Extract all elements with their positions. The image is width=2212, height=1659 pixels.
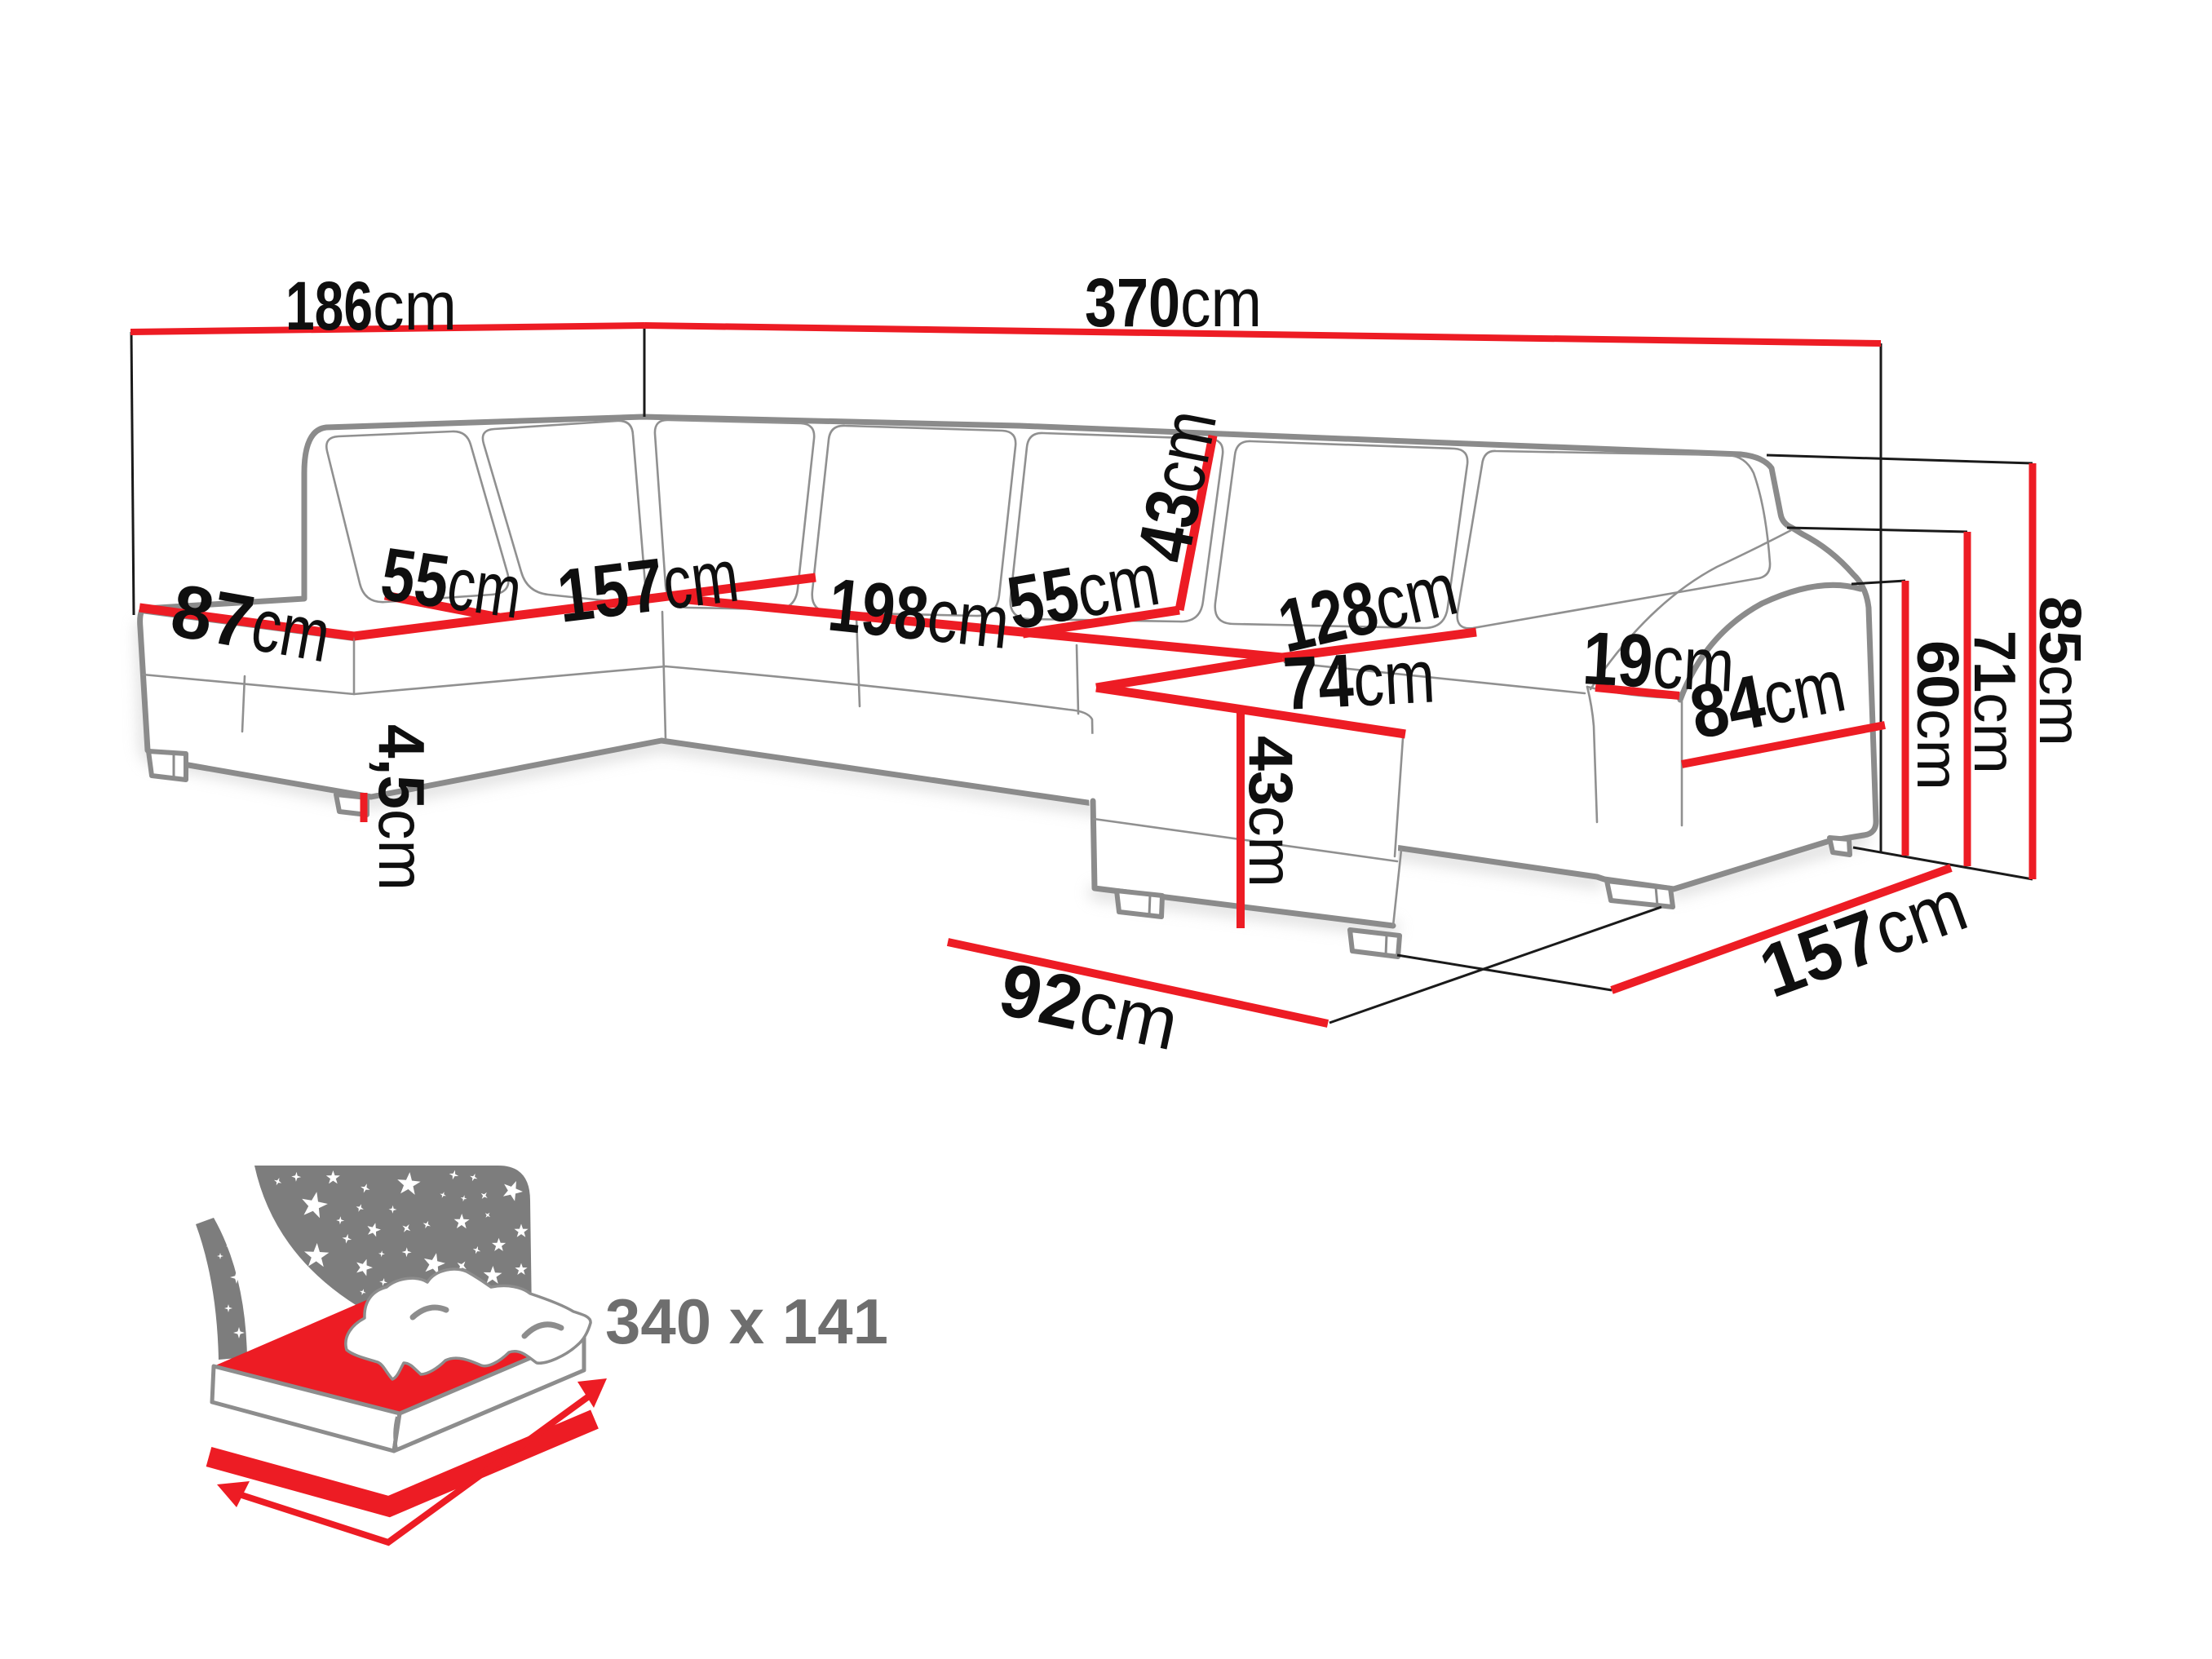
svg-text:85cm: 85cm (2027, 596, 2092, 746)
svg-text:60cm: 60cm (1905, 640, 1970, 790)
svg-text:4,5cm: 4,5cm (365, 724, 438, 891)
svg-text:43cm: 43cm (1236, 736, 1305, 887)
svg-text:74cm: 74cm (1281, 635, 1437, 726)
svg-text:370cm: 370cm (1085, 264, 1262, 341)
svg-text:186cm: 186cm (285, 268, 457, 344)
svg-text:340 x 141: 340 x 141 (605, 1285, 888, 1357)
svg-text:71cm: 71cm (1962, 630, 2027, 774)
